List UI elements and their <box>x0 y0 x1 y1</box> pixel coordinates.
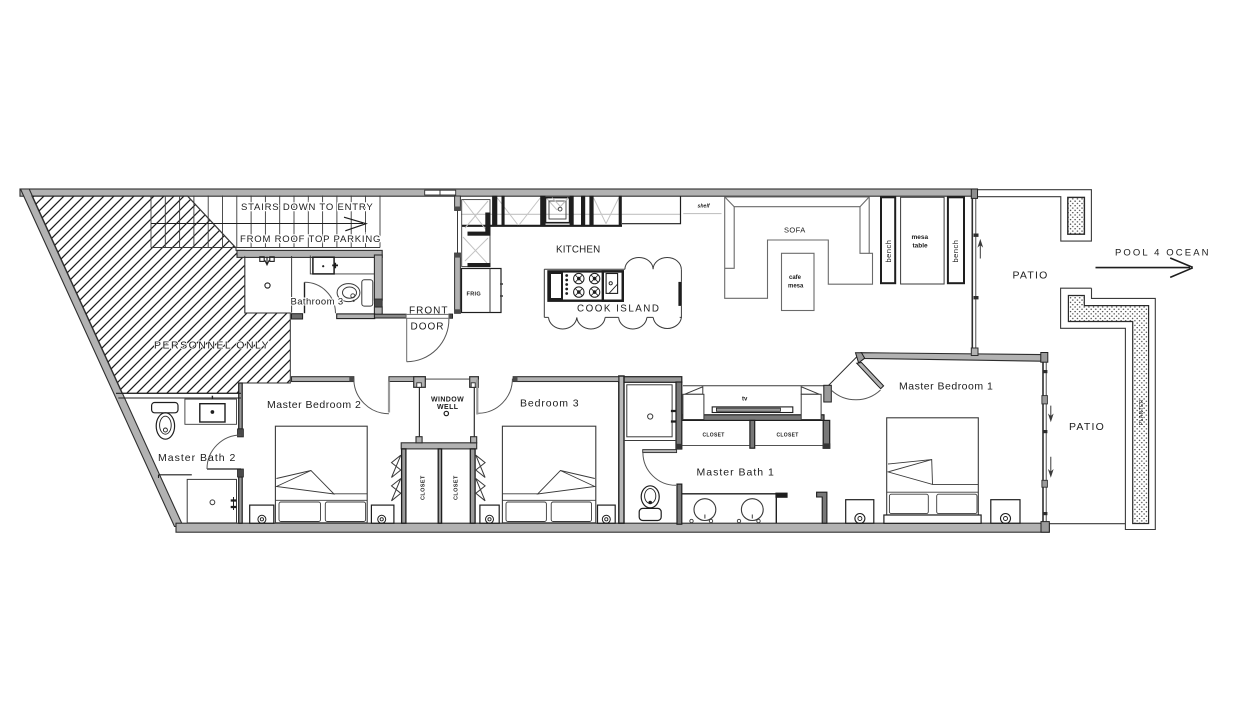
svg-text:CLOSET: CLOSET <box>703 433 725 439</box>
svg-text:Bedroom 3: Bedroom 3 <box>520 398 579 410</box>
svg-text:PLANTER: PLANTER <box>1139 399 1145 425</box>
svg-text:SOFA: SOFA <box>784 226 806 235</box>
svg-text:FRIG: FRIG <box>467 292 482 298</box>
svg-text:COOK ISLAND: COOK ISLAND <box>577 304 660 315</box>
svg-text:Master Bath 2: Master Bath 2 <box>158 452 236 464</box>
svg-text:PERSONNEL ONLY: PERSONNEL ONLY <box>154 340 270 352</box>
svg-text:POOL 4 OCEAN: POOL 4 OCEAN <box>1115 248 1211 259</box>
svg-text:PATIO: PATIO <box>1013 270 1049 282</box>
svg-text:table: table <box>913 243 929 250</box>
svg-text:bench: bench <box>951 240 960 263</box>
svg-text:cafe: cafe <box>789 275 802 281</box>
svg-text:PATIO: PATIO <box>1069 421 1105 433</box>
svg-text:FROM ROOF TOP PARKING: FROM ROOF TOP PARKING <box>240 234 381 245</box>
svg-text:CLOSET: CLOSET <box>777 433 799 439</box>
svg-text:mesa: mesa <box>912 234 929 241</box>
svg-text:WINDOW: WINDOW <box>431 397 464 404</box>
svg-text:Bathroom 3: Bathroom 3 <box>291 297 344 308</box>
svg-text:Master Bath 1: Master Bath 1 <box>697 467 775 479</box>
svg-text:FRONT: FRONT <box>409 306 448 317</box>
svg-text:CLOSET: CLOSET <box>454 475 460 500</box>
svg-text:DOOR: DOOR <box>411 322 445 333</box>
svg-text:WELL: WELL <box>437 404 459 411</box>
svg-text:CLOSET: CLOSET <box>421 475 427 500</box>
svg-text:tv: tv <box>742 397 748 403</box>
svg-text:Master Bedroom 1: Master Bedroom 1 <box>899 381 993 393</box>
svg-text:shelf: shelf <box>698 204 711 210</box>
svg-text:mesa: mesa <box>788 284 804 290</box>
svg-text:STAIRS DOWN TO ENTRY: STAIRS DOWN TO ENTRY <box>241 202 373 213</box>
svg-text:KITCHEN: KITCHEN <box>556 245 600 256</box>
svg-text:Master Bedroom 2: Master Bedroom 2 <box>267 399 361 411</box>
svg-text:bench: bench <box>884 240 893 263</box>
